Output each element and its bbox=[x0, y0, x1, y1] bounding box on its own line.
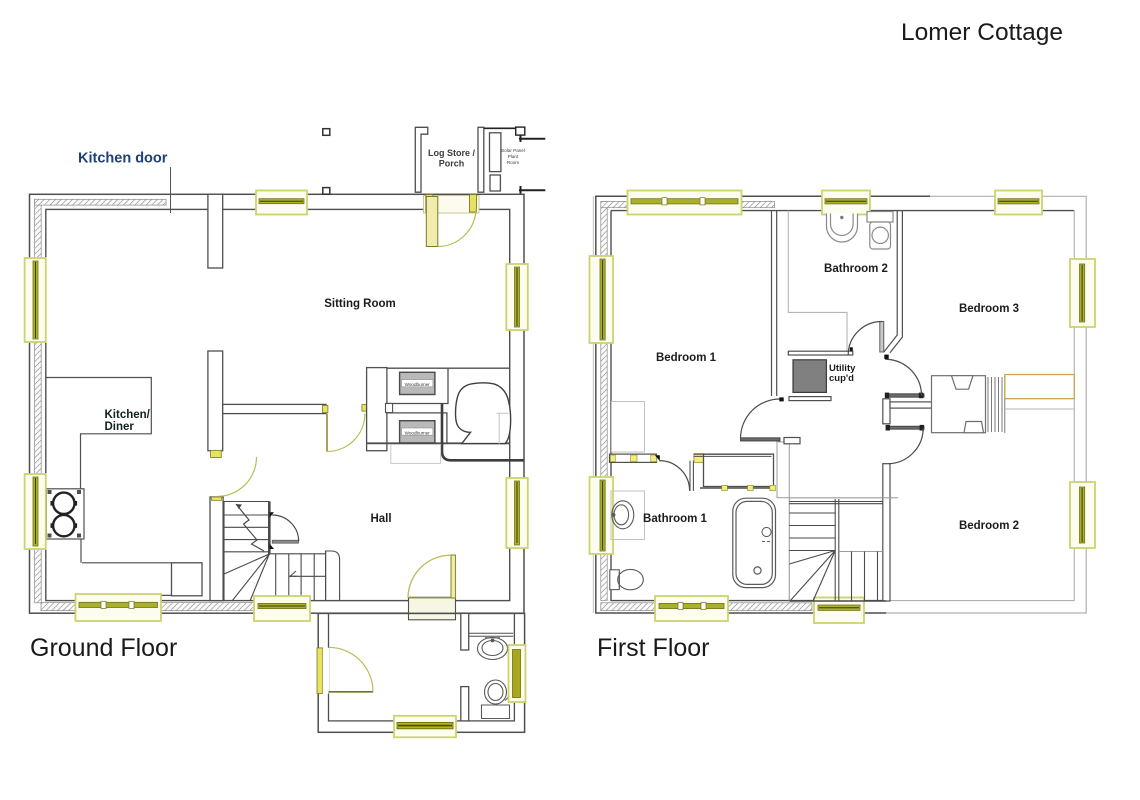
svg-text:Hall: Hall bbox=[370, 513, 391, 525]
svg-text:Room: Room bbox=[507, 160, 519, 165]
svg-text:Plant: Plant bbox=[508, 154, 519, 159]
svg-text:Kitchen/: Kitchen/ bbox=[105, 409, 151, 421]
svg-text:Bedroom 3: Bedroom 3 bbox=[959, 303, 1019, 315]
svg-text:First Floor: First Floor bbox=[597, 634, 710, 662]
svg-text:cup'd: cup'd bbox=[829, 373, 854, 384]
svg-text:Bathroom 1: Bathroom 1 bbox=[643, 513, 708, 525]
svg-text:Sitting Room: Sitting Room bbox=[324, 298, 396, 310]
svg-text:Kitchen door: Kitchen door bbox=[78, 151, 168, 167]
svg-text:Bathroom 2: Bathroom 2 bbox=[824, 263, 888, 275]
svg-text:Porch: Porch bbox=[439, 159, 465, 169]
svg-text:Solar Panel: Solar Panel bbox=[501, 148, 525, 153]
svg-text:Lomer Cottage: Lomer Cottage bbox=[901, 19, 1063, 46]
svg-text:Woodburner: Woodburner bbox=[405, 430, 431, 435]
svg-text:Bedroom 1: Bedroom 1 bbox=[656, 352, 717, 364]
svg-text:Bedroom 2: Bedroom 2 bbox=[959, 520, 1019, 532]
svg-text:Ground Floor: Ground Floor bbox=[30, 634, 177, 662]
svg-text:Log Store /: Log Store / bbox=[428, 148, 475, 158]
svg-text:Diner: Diner bbox=[105, 421, 135, 433]
svg-text:Woodburner: Woodburner bbox=[405, 382, 431, 387]
